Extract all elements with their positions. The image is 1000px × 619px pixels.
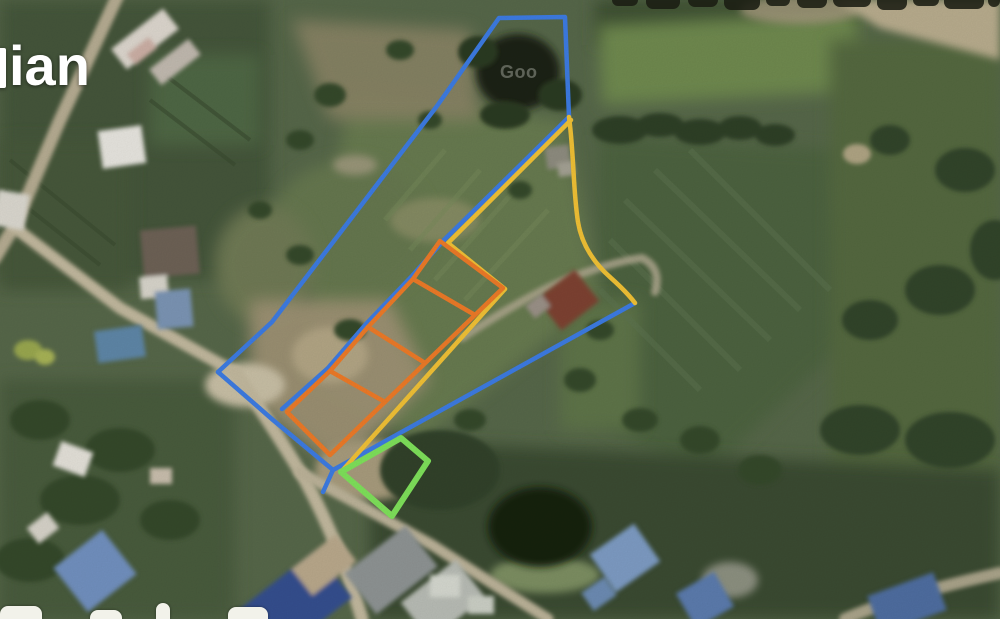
cropped-text-fragment <box>913 0 939 6</box>
cropped-text-fragment <box>766 0 790 6</box>
cropped-text-fragment <box>688 0 718 7</box>
cropped-text-fragment <box>156 603 170 619</box>
cropped-text-fragment <box>90 610 122 619</box>
photo-grain <box>0 0 1000 619</box>
cropped-text-fragment <box>833 0 871 7</box>
cropped-text-fragment <box>724 0 760 10</box>
cropped-text-fragment <box>877 0 907 10</box>
cropped-text-fragment <box>0 606 42 619</box>
cropped-text-fragment <box>646 0 680 9</box>
cropped-text-fragment <box>228 607 268 619</box>
satellite-imagery <box>0 0 1000 619</box>
cropped-text-fragment <box>612 0 638 6</box>
watermark-fragment: Goo <box>500 62 538 83</box>
satellite-map-view: ian Goo <box>0 0 1000 619</box>
place-label: ian <box>9 38 90 94</box>
cropped-letter-fragment <box>0 48 6 88</box>
cropped-text-fragment <box>797 0 827 8</box>
cropped-text-fragment <box>944 0 984 9</box>
